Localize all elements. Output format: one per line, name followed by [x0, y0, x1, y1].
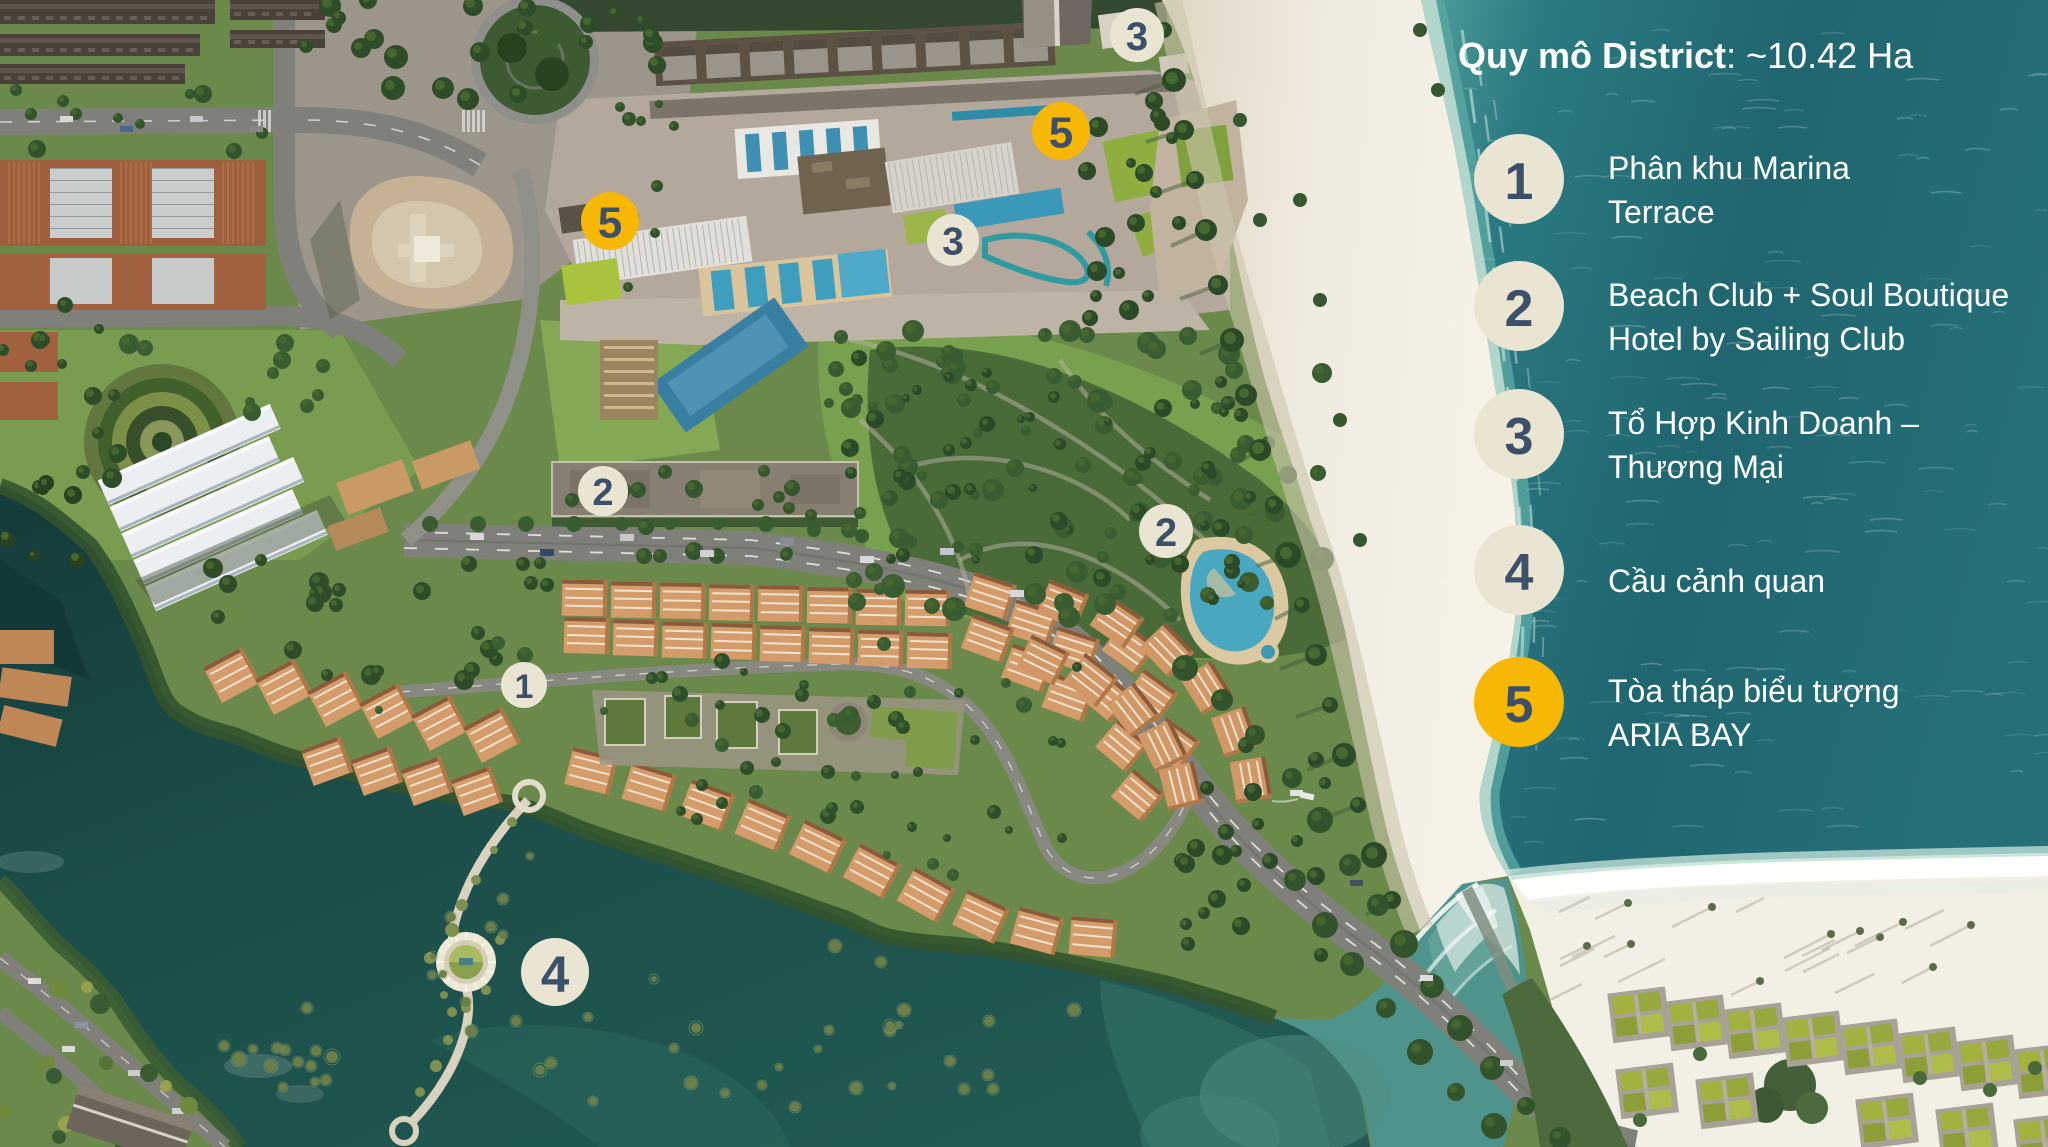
svg-text:5: 5 [1049, 109, 1073, 158]
svg-text:Thương Mại: Thương Mại [1608, 449, 1784, 485]
svg-text:Quy mô District: ~10.42 Ha: Quy mô District: ~10.42 Ha [1458, 35, 1914, 76]
svg-text:4: 4 [541, 946, 570, 1003]
svg-text:3: 3 [1505, 408, 1534, 466]
svg-text:Tòa tháp biểu tượng: Tòa tháp biểu tượng [1608, 673, 1899, 709]
svg-text:Hotel by Sailing Club: Hotel by Sailing Club [1608, 321, 1905, 357]
svg-text:2: 2 [592, 472, 613, 514]
svg-text:Cầu cảnh quan: Cầu cảnh quan [1608, 563, 1825, 599]
svg-text:Terrace: Terrace [1608, 194, 1715, 230]
svg-text:1: 1 [1505, 153, 1534, 211]
svg-text:3: 3 [942, 221, 964, 264]
svg-text:3: 3 [1126, 15, 1148, 59]
svg-text:2: 2 [1155, 511, 1177, 555]
svg-text:Phân khu Marina: Phân khu Marina [1608, 150, 1850, 186]
svg-text:5: 5 [598, 199, 622, 248]
svg-text:2: 2 [1505, 280, 1534, 338]
svg-text:1: 1 [515, 668, 534, 706]
svg-text:Tổ Hợp Kinh Doanh –: Tổ Hợp Kinh Doanh – [1608, 405, 1919, 441]
svg-text:4: 4 [1505, 544, 1534, 602]
svg-text:5: 5 [1505, 676, 1534, 734]
svg-text:ARIA BAY: ARIA BAY [1608, 717, 1751, 753]
svg-text:Beach Club + Soul Boutique: Beach Club + Soul Boutique [1608, 277, 2009, 313]
